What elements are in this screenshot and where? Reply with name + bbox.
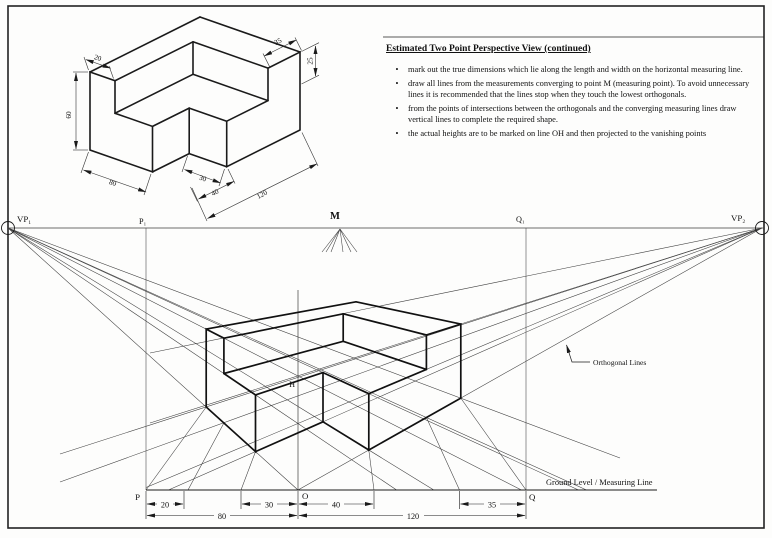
bullet-text: the actual heights are to be marked on l… (408, 128, 758, 139)
iso-dim-length: 120 (255, 189, 269, 201)
vp1-rays (8, 228, 620, 490)
p1-label: P₁ (139, 217, 147, 226)
vp2-rays (60, 228, 762, 490)
p-label: P (135, 492, 140, 502)
vp2-label: VP₂ (731, 213, 745, 223)
dim-120: 120 (407, 512, 419, 521)
q1-label: Q₁ (516, 215, 525, 224)
dim-80: 80 (218, 512, 226, 521)
m-label: M (330, 211, 340, 222)
orthogonal-leader (567, 345, 591, 362)
iso-dim-height: 60 (65, 111, 73, 119)
o-label: O (302, 491, 308, 501)
dim-40: 40 (332, 501, 340, 510)
perspective-object-edges (206, 302, 461, 452)
dim-30: 30 (265, 501, 273, 510)
bullet-glyph: • (386, 103, 408, 125)
bullet-glyph: • (386, 78, 408, 100)
iso-object-edges (90, 17, 300, 172)
m-converging-stubs (322, 229, 357, 252)
panel-title: Estimated Two Point Perspective View (co… (386, 44, 758, 54)
ground-line-label: Ground Level / Measuring Line (546, 478, 653, 487)
worksheet-page: { "instructions": { "title": "Estimated … (0, 0, 772, 538)
iso-dim-width: 80 (108, 178, 118, 188)
q-label: Q (529, 492, 536, 502)
bullet-item: • mark out the true dimensions which lie… (386, 64, 758, 75)
iso-dim-pocket-depth: 25 (307, 57, 315, 65)
iso-dim-back-wall: 20 (93, 53, 103, 63)
measuring-lines (146, 398, 526, 490)
orthogonal-lines-label: Orthogonal Lines (593, 358, 646, 367)
bullet-item: • draw all lines from the measurements c… (386, 78, 758, 100)
isometric-view: 60 80 30 40 120 20 35 25 (65, 17, 319, 221)
instruction-panel: Estimated Two Point Perspective View (co… (386, 38, 758, 143)
construction-lines (8, 228, 764, 490)
dim-35: 35 (488, 501, 496, 510)
bullet-text: mark out the true dimensions which lie a… (408, 64, 758, 75)
iso-dim-notch-depth: 30 (198, 174, 208, 184)
bullet-item: • from the points of intersections betwe… (386, 103, 758, 125)
bullet-item: • the actual heights are to be marked on… (386, 128, 758, 139)
h-label: H (289, 380, 295, 389)
dim-20: 20 (161, 501, 169, 510)
bullet-glyph: • (386, 128, 408, 139)
dimension-label-backs (157, 499, 500, 520)
point-labels: VP₁ P₁ M Q₁ VP₂ H P O Q Ground Level / M… (17, 211, 745, 502)
bullet-glyph: • (386, 64, 408, 75)
vp1-label: VP₁ (17, 214, 31, 224)
iso-dimension-lines (73, 38, 319, 222)
perspective-construction: 20 30 40 35 80 120 VP₁ P₁ M Q₁ VP₂ H P O… (2, 211, 769, 521)
bullet-text: draw all lines from the measurements con… (408, 78, 758, 100)
bullet-text: from the points of intersections between… (408, 103, 758, 125)
